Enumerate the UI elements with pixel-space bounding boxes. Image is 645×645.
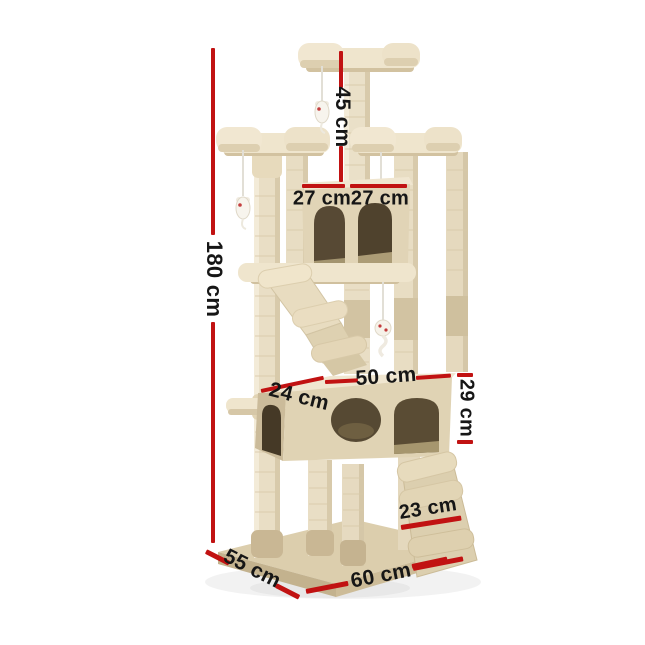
- dim-line-top-tier-lower: [339, 146, 343, 182]
- dim-tick-condo-height-bottom: [457, 440, 473, 444]
- dim-label-condo-height: 29 cm: [455, 379, 478, 437]
- dim-label-condo-width: 50 cm: [355, 363, 418, 391]
- product-dimension-diagram: 180 cm 45 cm 27 cm 27 cm 24 cm 50 cm 29 …: [0, 0, 645, 645]
- left-tall-post: [251, 148, 283, 558]
- hanging-mouse-toy-top: [315, 66, 329, 133]
- dim-line-top-tier-upper: [339, 51, 343, 88]
- dim-line-total-height-lower: [211, 322, 215, 543]
- dim-label-total-height: 180 cm: [201, 241, 227, 317]
- cat-tree-illustration: [0, 0, 645, 645]
- dim-label-top-tier: 45 cm: [330, 86, 354, 147]
- hanging-mouse-toy-left: [236, 150, 250, 229]
- dim-tick-condo-height-top: [457, 373, 473, 377]
- dim-label-upper-condo-left: 27 cm: [293, 188, 351, 211]
- right-upper-platform: [350, 127, 462, 156]
- dim-line-total-height-upper: [211, 48, 215, 235]
- top-platform: [298, 43, 420, 72]
- left-upper-platform: [216, 127, 330, 156]
- hanging-ball-toy: [375, 282, 391, 356]
- dim-label-upper-condo-right: 27 cm: [351, 188, 409, 211]
